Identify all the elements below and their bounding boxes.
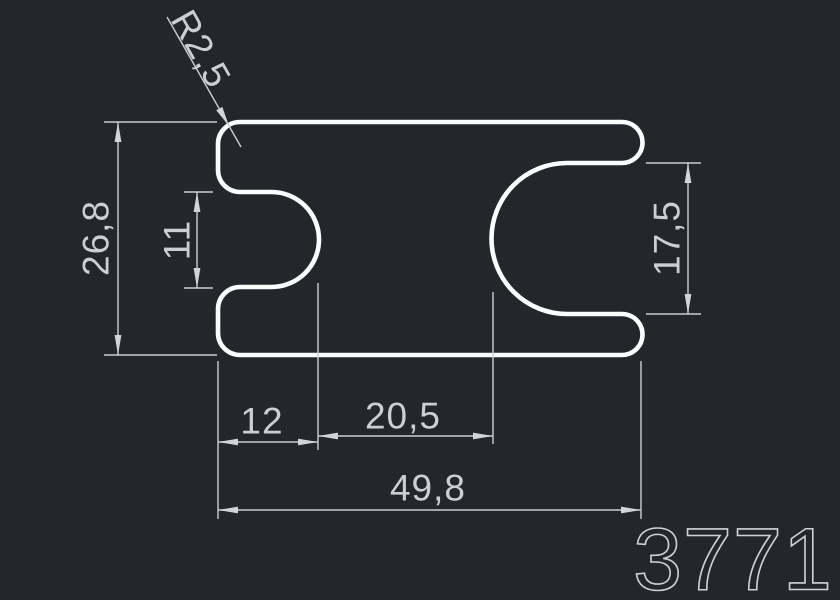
dim-corner-radius: R2,5 xyxy=(163,3,241,147)
arrowhead-up-icon xyxy=(115,122,122,142)
part-number-label: 3771 xyxy=(633,510,833,600)
dim-left-slot-depth: 12 xyxy=(218,401,318,446)
arrowhead-right-icon xyxy=(298,439,318,446)
dim-center-distance-value: 20,5 xyxy=(365,396,441,437)
arrowhead-up-icon xyxy=(194,192,201,212)
dim-corner-radius-value: R2,5 xyxy=(163,3,239,95)
arrowhead-left-icon xyxy=(218,507,238,514)
arrowhead-down-icon xyxy=(115,335,122,355)
dim-right-slot-opening-value: 17,5 xyxy=(647,200,688,276)
dim-overall-height-value: 26,8 xyxy=(76,200,117,276)
dim-left-slot-depth-value: 12 xyxy=(240,401,283,442)
dim-left-slot-opening-value: 11 xyxy=(157,220,198,260)
arrowhead-down-icon xyxy=(685,294,692,314)
profile-outline xyxy=(218,122,643,355)
dim-center-distance: 20,5 xyxy=(318,396,493,440)
arrowhead-up-icon xyxy=(685,163,692,183)
dim-overall-width-value: 49,8 xyxy=(390,468,466,509)
arrowhead-right-icon xyxy=(473,433,493,440)
dim-overall-width: 49,8 xyxy=(218,468,641,514)
arrowhead-down-icon xyxy=(194,268,201,288)
dim-right-slot-opening: 17,5 xyxy=(646,163,701,314)
arrowhead-left-icon xyxy=(218,439,238,446)
dim-left-slot-opening: 11 xyxy=(157,192,214,288)
cad-drawing-canvas: R2,5 26,8 11 17,5 12 xyxy=(0,0,840,600)
arrowhead-icon xyxy=(216,107,229,126)
arrowhead-left-icon xyxy=(318,433,338,440)
